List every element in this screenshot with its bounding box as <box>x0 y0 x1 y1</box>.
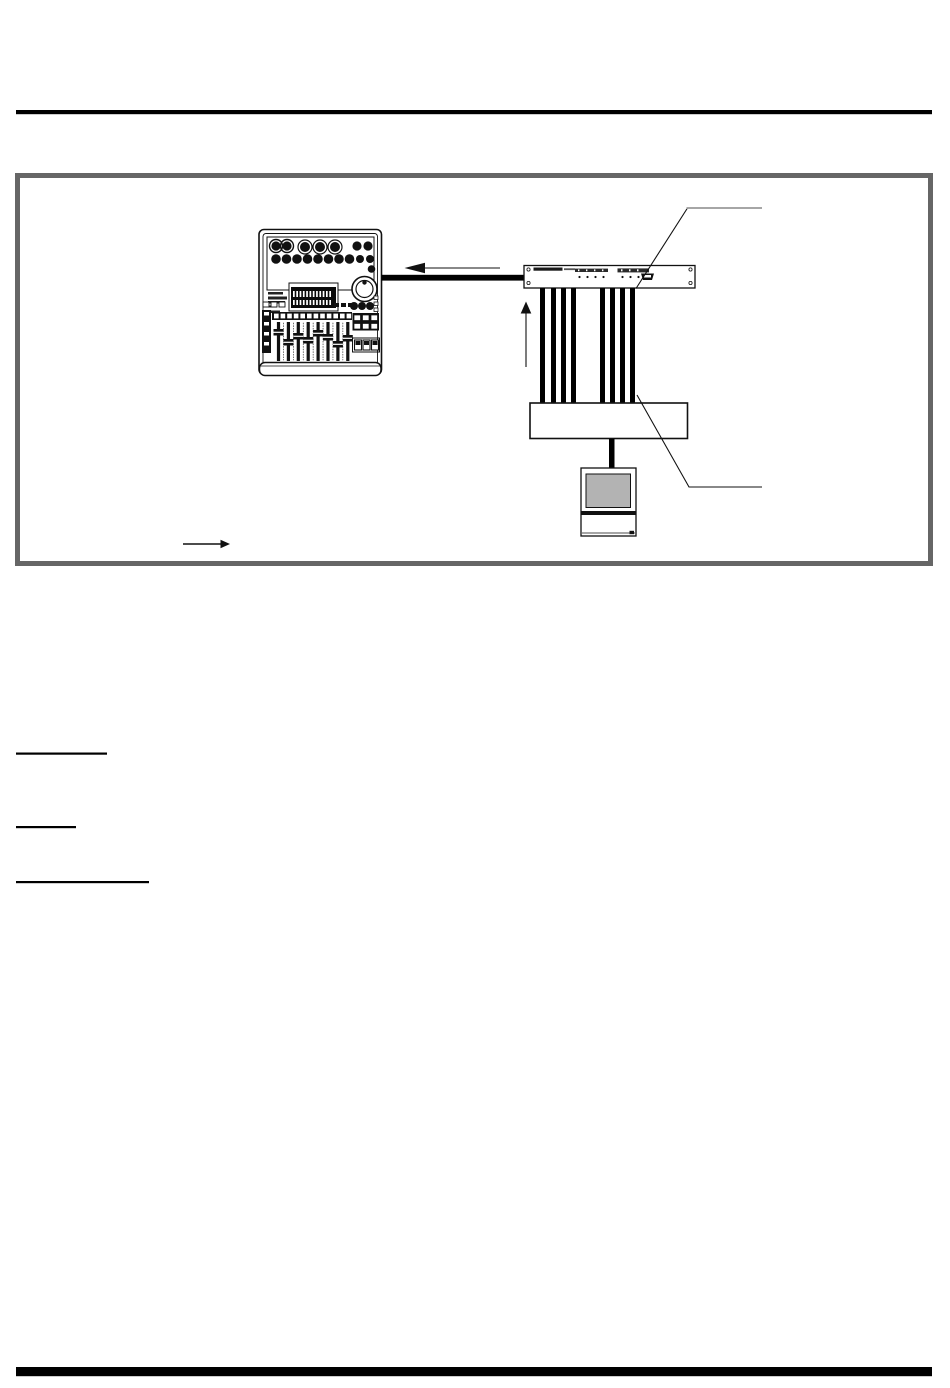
arrowhead-right-icon <box>221 540 231 549</box>
cable <box>561 288 566 403</box>
rack-screw-icon <box>527 281 530 284</box>
cable <box>630 288 635 403</box>
fader-cap-line <box>313 333 323 334</box>
manual-page <box>0 0 950 1388</box>
fader-track <box>277 322 280 361</box>
heading-underlines <box>16 753 149 884</box>
rack-interface-unit <box>524 266 695 289</box>
rack-screw-icon <box>689 268 692 271</box>
fader-cap-line <box>333 344 343 345</box>
multichannel-cables <box>540 288 635 403</box>
top-rule <box>16 110 932 114</box>
signal-flow-arrow-up <box>521 302 532 368</box>
heading-underline <box>16 881 149 883</box>
mixer-armrest <box>260 363 382 376</box>
bottom-rule <box>16 1367 932 1376</box>
digital-mixer <box>259 230 382 376</box>
signal-flow-arrow-left <box>405 263 501 274</box>
cable <box>540 288 545 403</box>
mixer-rack-cable <box>382 275 525 281</box>
mixer-left-button-column <box>262 310 271 353</box>
mixer-channel-select-row <box>272 312 352 320</box>
heading-underline <box>16 753 107 755</box>
mixer-jog-dial <box>352 277 377 302</box>
fader-track <box>317 322 320 361</box>
rack-brand-print <box>534 268 563 271</box>
cable <box>551 288 556 403</box>
cable <box>620 288 625 403</box>
figure-frame <box>18 176 931 564</box>
fader-cap-line <box>274 332 284 333</box>
mixer-display <box>289 283 338 311</box>
fader-cap-line <box>303 340 313 341</box>
monitor-slot-icon <box>630 531 635 534</box>
figure-footnote-arrow <box>183 540 230 549</box>
rack-screw-icon <box>527 268 530 271</box>
fader-track <box>297 322 300 361</box>
fader-cap-line <box>323 337 333 338</box>
monitor-screen <box>586 474 631 508</box>
arrowhead-left-icon <box>405 263 426 274</box>
fader-cap-line <box>293 336 303 337</box>
cable <box>600 288 605 403</box>
arrowhead-up-icon <box>521 302 532 314</box>
monitor-divider <box>581 511 636 515</box>
fader-track <box>326 322 329 361</box>
fader-cap-line <box>283 342 293 343</box>
rack-screw-icon <box>689 281 692 284</box>
rack-model-print <box>564 268 575 270</box>
heading-underline <box>16 826 76 828</box>
box-monitor-cable <box>609 439 615 469</box>
breakout-box <box>530 403 688 439</box>
cable <box>610 288 615 403</box>
cable <box>571 288 576 403</box>
fader-cap-line <box>343 338 353 339</box>
computer-monitor <box>581 468 636 536</box>
